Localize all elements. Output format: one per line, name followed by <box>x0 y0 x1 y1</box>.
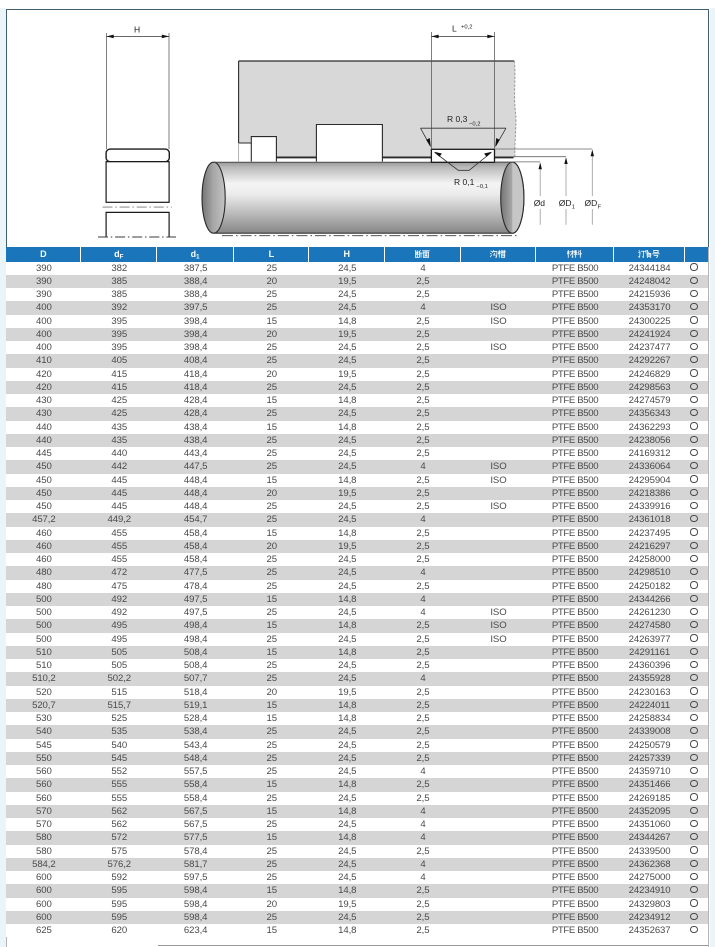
svg-text:ØD: ØD <box>585 198 598 208</box>
svg-text:L: L <box>452 24 457 34</box>
svg-text:ØD: ØD <box>559 198 572 208</box>
svg-text:R 0,3: R 0,3 <box>447 114 468 124</box>
svg-text:Ød: Ød <box>534 198 546 208</box>
svg-text:H: H <box>134 25 140 35</box>
svg-text:F: F <box>598 205 602 211</box>
svg-text:−0,2: −0,2 <box>469 122 480 128</box>
svg-text:+0,2: +0,2 <box>461 25 472 31</box>
svg-text:R 0,1: R 0,1 <box>454 177 475 187</box>
svg-text:1: 1 <box>572 205 575 211</box>
svg-text:−0,1: −0,1 <box>477 184 488 190</box>
